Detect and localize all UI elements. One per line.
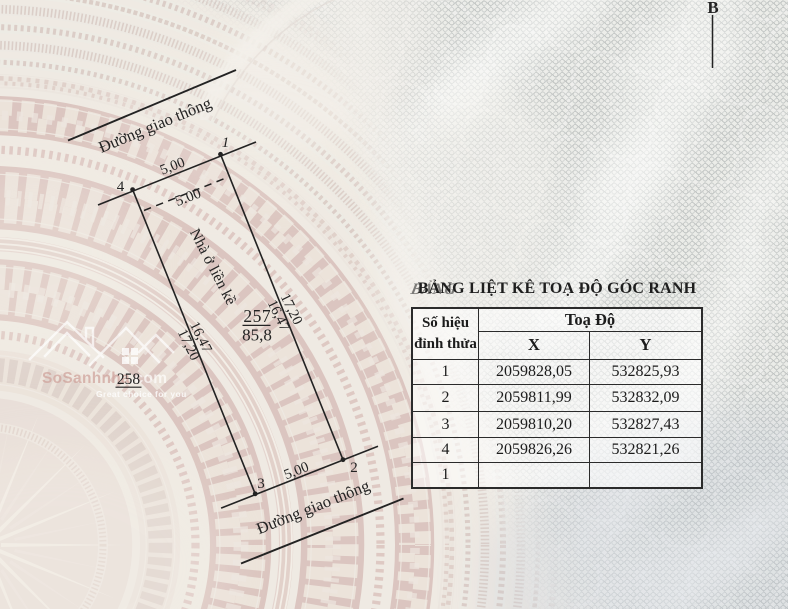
svg-text:2: 2 — [350, 460, 358, 476]
svg-text:85,8: 85,8 — [242, 326, 272, 345]
svg-text:258: 258 — [117, 371, 141, 388]
svg-text:3: 3 — [257, 476, 265, 492]
svg-text:4: 4 — [117, 179, 125, 195]
svg-text:SoSanhnha.com: SoSanhnha.com — [42, 370, 167, 387]
svg-text:B: B — [707, 0, 718, 17]
svg-text:1: 1 — [222, 135, 230, 151]
svg-text:257: 257 — [243, 306, 271, 326]
svg-text:Great choice for you: Great choice for you — [96, 389, 187, 399]
